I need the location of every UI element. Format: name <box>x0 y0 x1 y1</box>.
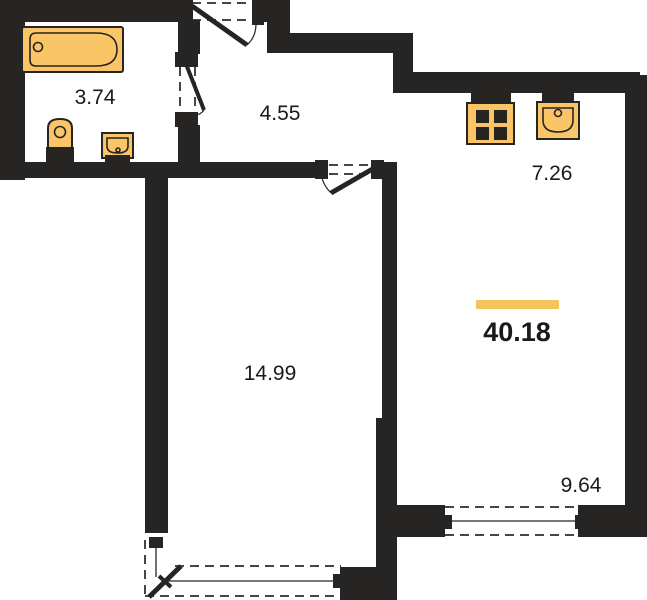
wall-segment <box>340 567 397 600</box>
door-swing-arc <box>322 178 331 193</box>
door-leaf <box>331 167 376 193</box>
kitchen-sink <box>537 93 579 139</box>
living-window <box>445 507 578 535</box>
room-area-label-bedroom: 14.99 <box>244 362 297 385</box>
door-swing-arc <box>247 24 256 45</box>
room-area-label-hallway: 4.55 <box>260 102 301 125</box>
floor-plan: 3.74 4.55 7.26 14.99 9.64 40.18 <box>0 0 647 600</box>
stove <box>467 93 514 144</box>
room-area-label-living: 9.64 <box>561 474 602 497</box>
wall-segment <box>0 0 188 22</box>
wall-segment <box>393 72 640 93</box>
total-area-value: 40.18 <box>483 317 551 347</box>
wall-segment <box>263 0 290 22</box>
balcony-zone <box>145 540 341 597</box>
burner <box>494 127 507 140</box>
entrance-door <box>192 3 256 45</box>
wall-segment <box>267 33 413 53</box>
total-area-badge: 40.18 <box>476 300 559 347</box>
floor-plan-drawing: 3.74 4.55 7.26 14.99 9.64 40.18 <box>0 0 647 600</box>
door-jamb <box>252 0 264 25</box>
window-jamb <box>333 574 343 588</box>
door-jamb <box>175 112 198 127</box>
bathroom-door <box>180 64 204 115</box>
door-leaf <box>192 6 247 45</box>
wall-segment <box>145 178 168 533</box>
wall-segment <box>0 0 25 180</box>
wall-segment <box>178 20 200 54</box>
toilet <box>46 119 74 162</box>
room-area-label-kitchen: 7.26 <box>532 162 573 185</box>
wall-segment <box>625 75 647 537</box>
window-jamb <box>149 537 163 548</box>
wall-segment <box>397 505 445 537</box>
burner <box>476 110 489 123</box>
bedroom-door <box>322 165 376 193</box>
accent-bar <box>476 300 559 309</box>
wash-basin <box>102 133 133 163</box>
wall-segment <box>0 162 315 178</box>
wall-segment <box>178 125 200 165</box>
wall-segment <box>382 175 397 420</box>
room-area-label-bathroom: 3.74 <box>75 86 116 109</box>
wall-segment <box>578 505 647 537</box>
window-jamb <box>443 515 452 529</box>
door-jamb <box>315 160 328 179</box>
burner <box>494 110 507 123</box>
burner <box>476 127 489 140</box>
bathtub <box>22 27 123 72</box>
